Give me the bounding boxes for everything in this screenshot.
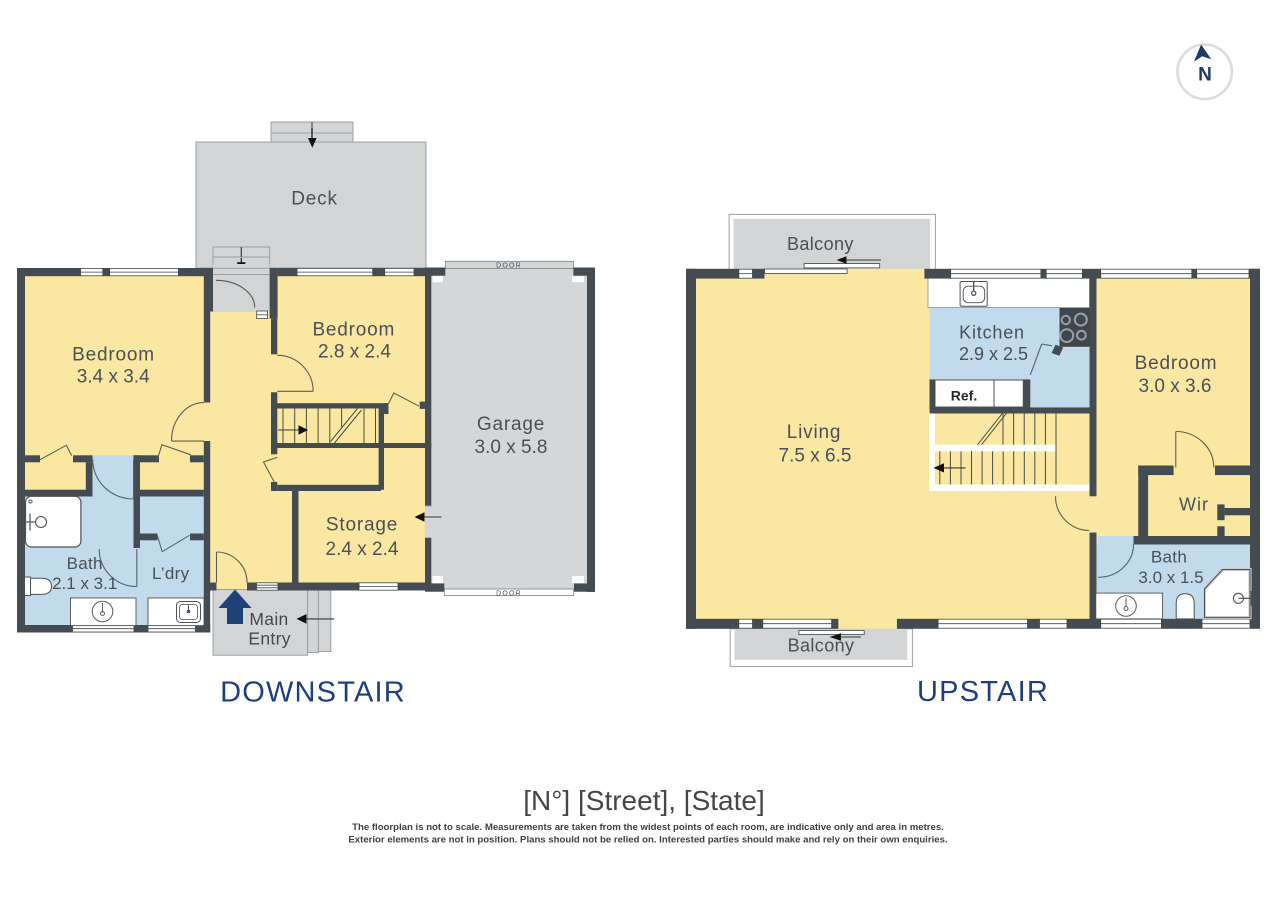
svg-text:Balcony: Balcony [787, 234, 854, 254]
svg-text:3.0 x 1.5: 3.0 x 1.5 [1138, 568, 1203, 587]
svg-text:L’dry: L’dry [152, 564, 190, 583]
svg-text:Deck: Deck [291, 189, 338, 210]
svg-text:Garage: Garage [477, 414, 545, 435]
svg-text:[N°] [Street], [State]: [N°] [Street], [State] [523, 785, 765, 816]
svg-text:Bath: Bath [67, 554, 103, 573]
svg-text:Ref.: Ref. [951, 388, 977, 404]
svg-text:Exterior elements are not in p: Exterior elements are not in position. P… [348, 835, 947, 846]
svg-text:Balcony: Balcony [788, 636, 855, 656]
svg-text:Bedroom: Bedroom [72, 344, 155, 365]
svg-text:Wir: Wir [1179, 494, 1209, 514]
svg-text:3.4 x 3.4: 3.4 x 3.4 [77, 366, 150, 387]
svg-text:DOOR: DOOR [496, 263, 522, 270]
svg-text:Living: Living [787, 422, 841, 443]
svg-text:Bedroom: Bedroom [312, 320, 395, 341]
svg-text:Main: Main [249, 609, 288, 629]
svg-text:Entry: Entry [248, 629, 290, 649]
svg-text:Kitchen: Kitchen [959, 323, 1025, 343]
svg-text:The floorplan is not to scale.: The floorplan is not to scale. Measureme… [352, 822, 944, 833]
svg-text:Bedroom: Bedroom [1135, 353, 1218, 374]
svg-text:2.8 x 2.4: 2.8 x 2.4 [318, 342, 391, 363]
svg-text:Bath: Bath [1151, 547, 1187, 566]
svg-text:2.1 x 3.1: 2.1 x 3.1 [52, 574, 117, 593]
svg-text:3.0 x 5.8: 3.0 x 5.8 [475, 437, 548, 458]
svg-text:Storage: Storage [326, 514, 398, 535]
svg-text:2.4 x 2.4: 2.4 x 2.4 [326, 539, 399, 560]
svg-text:N: N [1198, 65, 1212, 86]
svg-text:UPSTAIR: UPSTAIR [917, 676, 1049, 708]
svg-text:2.9 x 2.5: 2.9 x 2.5 [959, 344, 1028, 364]
svg-text:DOOR: DOOR [496, 590, 522, 597]
svg-text:DOWNSTAIR: DOWNSTAIR [220, 677, 406, 709]
svg-text:3.0 x 3.6: 3.0 x 3.6 [1139, 376, 1212, 397]
svg-text:7.5 x 6.5: 7.5 x 6.5 [779, 446, 852, 467]
